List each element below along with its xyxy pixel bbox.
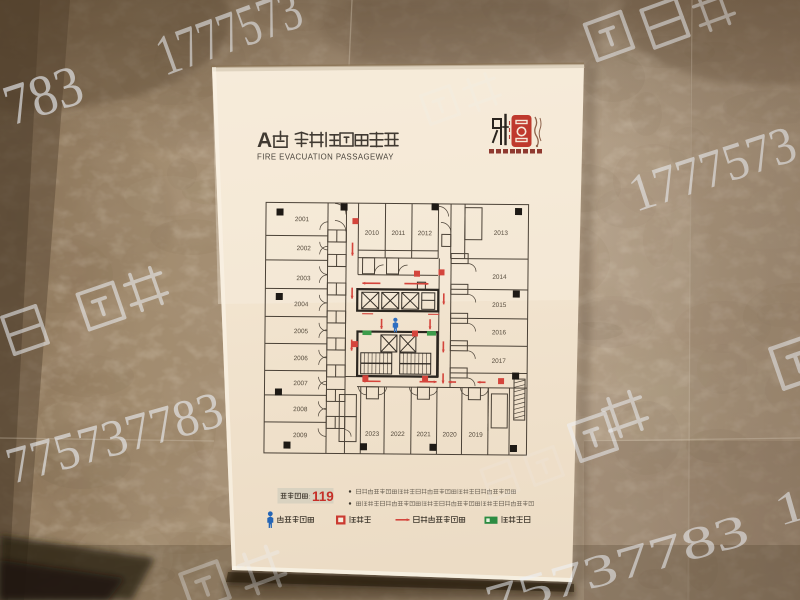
- svg-text:2009: 2009: [293, 432, 308, 439]
- svg-text:2008: 2008: [293, 406, 308, 413]
- svg-text:2019: 2019: [468, 432, 483, 439]
- svg-text:2012: 2012: [418, 230, 433, 237]
- svg-text:2007: 2007: [293, 380, 308, 387]
- svg-text:2010: 2010: [365, 230, 380, 237]
- svg-text:2014: 2014: [492, 274, 507, 281]
- svg-text:FIRE EVACUATION PASSAGEWAY: FIRE EVACUATION PASSAGEWAY: [257, 153, 394, 162]
- svg-text:2002: 2002: [297, 245, 312, 252]
- svg-text:2016: 2016: [492, 329, 507, 336]
- svg-text:2022: 2022: [390, 431, 405, 438]
- svg-text:2005: 2005: [294, 328, 309, 335]
- svg-text:2013: 2013: [494, 230, 509, 237]
- svg-text:2017: 2017: [492, 358, 507, 365]
- svg-text:2003: 2003: [296, 275, 311, 282]
- svg-text:2015: 2015: [492, 302, 507, 309]
- svg-text:2020: 2020: [442, 431, 457, 438]
- svg-text:2023: 2023: [365, 431, 380, 438]
- svg-text:2004: 2004: [294, 301, 309, 308]
- svg-text:A: A: [257, 129, 272, 152]
- svg-text:2001: 2001: [295, 216, 310, 223]
- svg-text:2006: 2006: [294, 355, 309, 362]
- svg-text:2021: 2021: [416, 431, 431, 438]
- svg-text:119: 119: [312, 489, 334, 504]
- svg-text:2011: 2011: [391, 230, 405, 237]
